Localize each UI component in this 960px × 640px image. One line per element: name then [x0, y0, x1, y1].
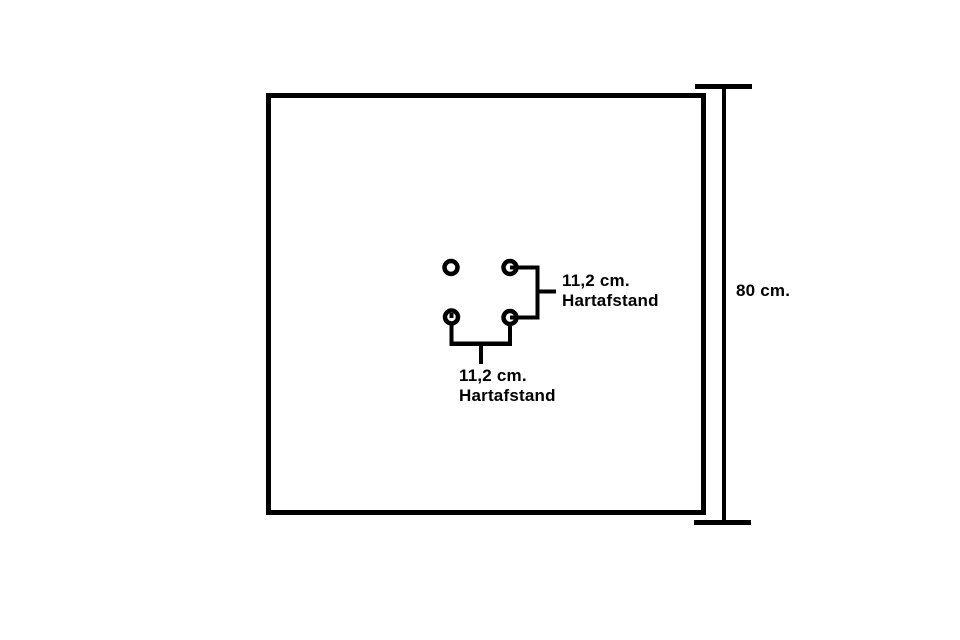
vertical-spacing-label: 11,2 cm. Hartafstand: [562, 271, 659, 310]
horizontal-spacing-label: 11,2 cm. Hartafstand: [459, 366, 556, 405]
mounting-hole-top-left: [445, 261, 458, 274]
vertical-spacing-label-line1: 11,2 cm.: [562, 271, 659, 291]
plate-diagram-drawing: [0, 0, 960, 640]
horizontal-spacing-label-line2: Hartafstand: [459, 386, 556, 406]
diagram-lines-group: [269, 87, 753, 523]
vertical-spacing-label-line2: Hartafstand: [562, 291, 659, 311]
horizontal-spacing-label-line1: 11,2 cm.: [459, 366, 556, 386]
plate-height-label: 80 cm.: [736, 281, 790, 301]
diagram-canvas: 80 cm. 11,2 cm. Hartafstand 11,2 cm. Har…: [0, 0, 960, 640]
mounting-holes-group: [445, 261, 517, 324]
